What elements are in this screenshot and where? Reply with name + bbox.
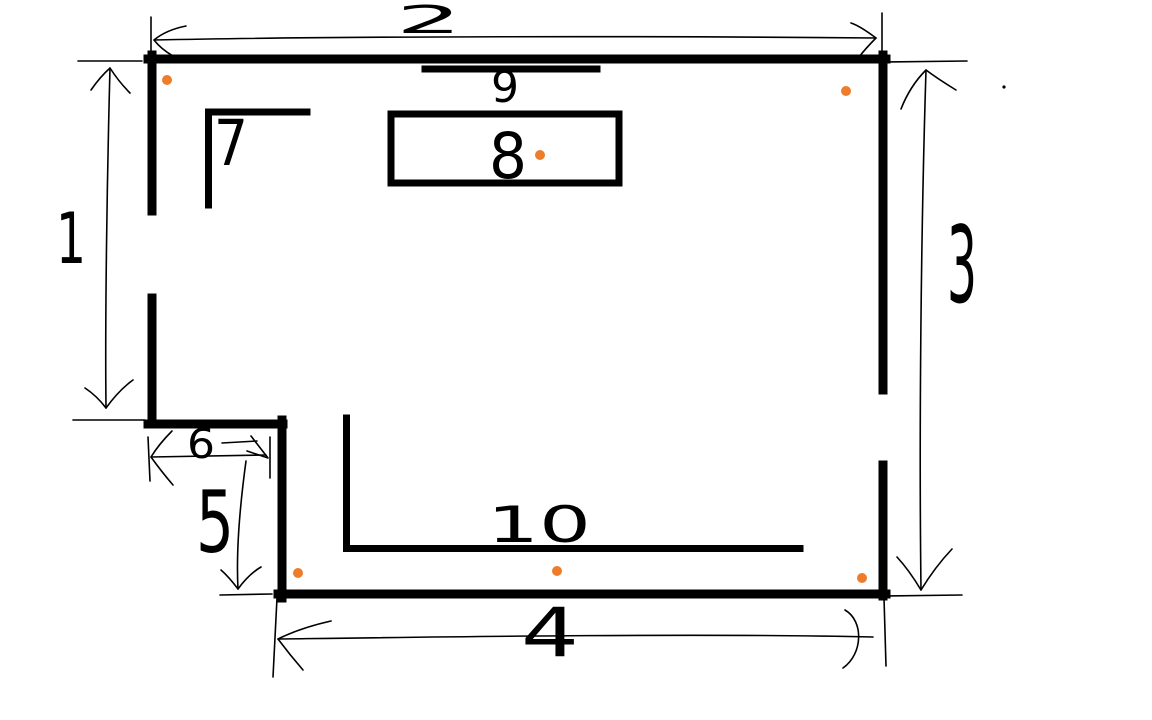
dimension-label-left-height-1: 1 [56,198,86,280]
dimension-label-bottom-inner-wall-10: 10 [487,496,591,554]
dimension-label-corner-wall-7: 7 [214,107,248,180]
arrowhead-left-icon [278,621,331,670]
arrowhead-down-icon [85,380,133,408]
extension-line [220,594,272,595]
dimension-label-step-width-6: 6 [187,420,215,468]
dimension-label-top-width-2: 2 [396,0,462,42]
dimension-label-top-line-9: 9 [491,62,519,113]
extension-tick [148,437,150,481]
dimension-line [154,37,876,40]
arrowhead-down-icon [897,549,952,590]
dimension-label-step-height-5: 5 [196,473,234,573]
orange-dot-marker [857,573,867,583]
orange-dot-marker [535,150,545,160]
extension-line [884,61,967,62]
extension-line [273,598,277,677]
orange-dot-marker [293,568,303,578]
leader-line [222,441,257,443]
dimension-bottom-width [273,598,886,677]
orange-dot-marker [841,86,851,96]
dimension-line [920,70,926,590]
labels-layer: 12345678910 [56,0,977,673]
orange-dot-marker [552,566,562,576]
dimension-line [237,461,246,589]
extension-line [886,595,962,596]
dimension-right-height [884,61,967,596]
arrowhead-up-icon [901,70,956,109]
arrowhead-right-icon [851,23,876,57]
stray-ink-dot [1002,85,1005,88]
dimension-top-width [151,13,882,57]
dimension-label-right-height-3: 3 [947,204,977,327]
dimension-label-table-8: 8 [489,120,527,193]
floor-plan-sketch: 12345678910 [0,0,1152,720]
arrowhead-left-icon [151,431,173,485]
dimension-label-bottom-width-4: 4 [521,594,579,673]
orange-dot-marker [162,75,172,85]
drawing-canvas: 12345678910 [0,0,1152,720]
arrowhead-right-icon [843,610,859,668]
dimension-line [106,68,110,408]
extension-line [884,598,886,666]
arrowhead-left-icon [154,26,186,56]
